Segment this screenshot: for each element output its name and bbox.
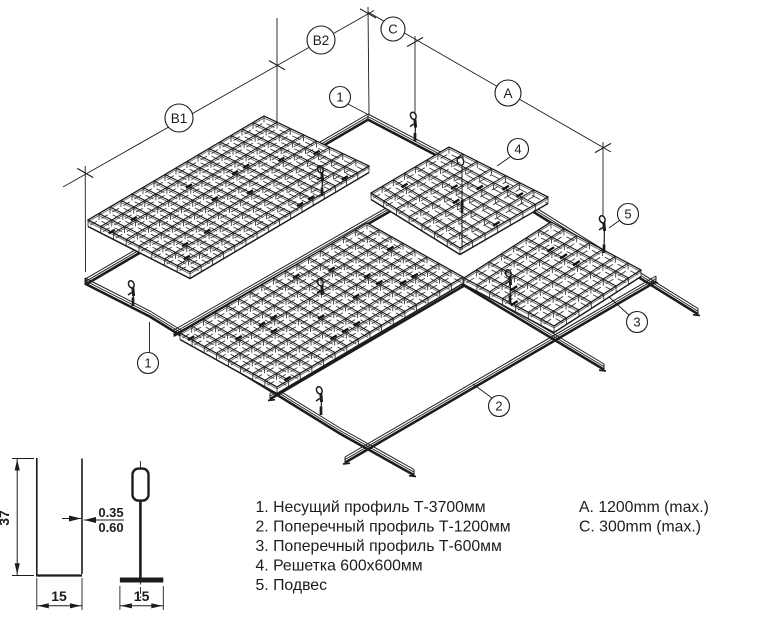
svg-text:C: C: [388, 22, 397, 37]
svg-text:A. 1200mm (max.): A. 1200mm (max.): [579, 499, 709, 516]
svg-text:15: 15: [134, 588, 150, 604]
svg-text:B1: B1: [171, 111, 188, 126]
svg-text:2. Поперечный профиль Т-1200мм: 2. Поперечный профиль Т-1200мм: [256, 519, 511, 536]
svg-text:C. 300mm (max.): C. 300mm (max.): [579, 519, 701, 536]
svg-text:2: 2: [495, 399, 502, 414]
svg-text:0.35: 0.35: [98, 505, 123, 520]
svg-text:5: 5: [624, 207, 631, 222]
svg-text:A: A: [503, 86, 512, 101]
svg-text:3. Поперечный профиль Т-600мм: 3. Поперечный профиль Т-600мм: [256, 538, 502, 555]
svg-text:B2: B2: [313, 33, 330, 48]
svg-text:5. Подвес: 5. Подвес: [256, 577, 328, 594]
svg-text:4: 4: [514, 142, 521, 157]
svg-text:15: 15: [51, 588, 67, 604]
svg-text:1: 1: [144, 356, 151, 371]
svg-text:4. Решетка 600х600мм: 4. Решетка 600х600мм: [256, 558, 423, 575]
svg-text:3: 3: [633, 315, 640, 330]
svg-text:1. Несущий профиль Т-3700мм: 1. Несущий профиль Т-3700мм: [256, 499, 486, 516]
svg-text:1: 1: [336, 90, 343, 105]
svg-text:0.60: 0.60: [98, 520, 123, 535]
svg-text:37: 37: [0, 510, 12, 526]
